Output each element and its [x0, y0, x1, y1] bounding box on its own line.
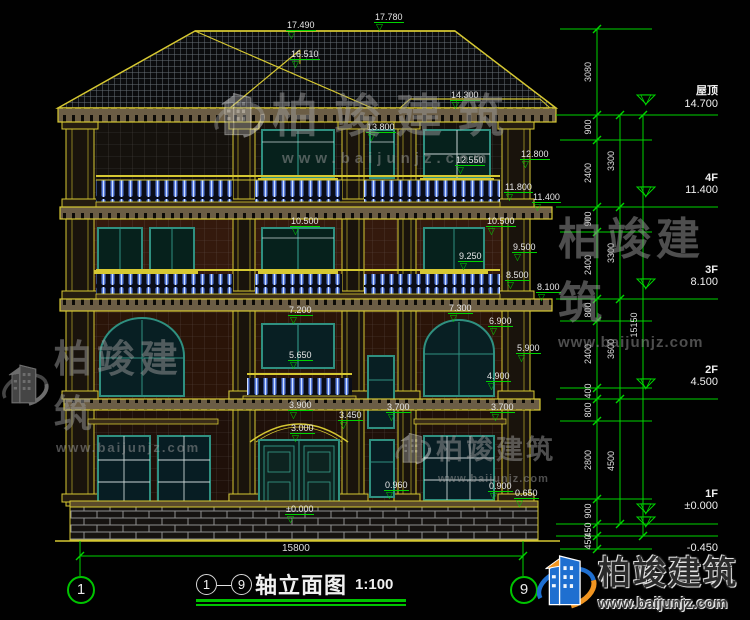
drawing-title: 1—9轴立面图1:100: [196, 568, 393, 600]
elevation-marker-icon: ▽: [488, 228, 516, 235]
elevation-label: 6.900▽: [488, 316, 513, 335]
balustrade-3f: [96, 270, 500, 299]
elevation-label: 9.250▽: [458, 251, 483, 270]
elevation-label: 17.490▽: [286, 20, 316, 39]
floor-marker: -0.450: [648, 542, 718, 554]
balustrade-4f: [96, 176, 500, 207]
floor-marker: 1F±0.000: [648, 488, 718, 512]
floor-marker-triangle-icon: ▽: [640, 186, 652, 198]
elevation-marker-icon: ▽: [290, 317, 313, 324]
elevation-marker-icon: ▽: [386, 492, 409, 499]
dimension-value: 3600: [606, 339, 616, 359]
dimension-value: 2400: [583, 163, 593, 183]
elevation-marker-icon: ▽: [460, 263, 483, 270]
title-axis-to: 9: [231, 574, 252, 595]
floor-marker: 3F8.100: [648, 264, 718, 288]
roof: [58, 31, 556, 108]
elevation-label: 3.900▽: [288, 400, 313, 419]
title-dash: —: [217, 576, 231, 592]
elevation-marker-icon: ▽: [450, 315, 473, 322]
elevation-label: 5.650▽: [288, 350, 313, 369]
elevation-marker-icon: ▽: [292, 228, 320, 235]
dimension-value: 3300: [606, 151, 616, 171]
dimension-value: 400: [583, 383, 593, 398]
dimension-value: 800: [583, 402, 593, 417]
cad-elevation-drawing: 17.490▽17.780▽16.510▽14.300▽13.800▽12.80…: [0, 0, 750, 620]
elevation-label: 4.900▽: [486, 371, 511, 390]
title-text: 轴立面图: [255, 573, 347, 598]
elevation-marker-icon: ▽: [287, 516, 314, 523]
elevation-marker-icon: ▽: [376, 24, 404, 31]
elevation-label: 3.000▽: [290, 423, 315, 442]
elevation-marker-icon: ▽: [290, 362, 313, 369]
axis-bubble-1: 1: [67, 576, 95, 604]
floor-marker: 4F11.400: [648, 172, 718, 196]
dimension-value: 900: [583, 211, 593, 226]
floor-marker: 2F4.500: [648, 364, 718, 388]
elevation-label: 0.650▽: [514, 488, 539, 507]
elevation-label: 11.400▽: [532, 192, 561, 211]
elevation-label: 8.100▽: [536, 282, 561, 301]
axis-bubble-9: 9: [510, 576, 538, 604]
elevation-marker-icon: ▽: [514, 254, 537, 261]
floor-marker-triangle-icon: ▽: [640, 278, 652, 290]
elevation-label: 17.780▽: [374, 12, 404, 31]
dimension-value: 3300: [606, 243, 616, 263]
dimension-value: 450: [583, 534, 593, 549]
elevation-marker-icon: ▽: [534, 204, 561, 211]
elevation-marker-icon: ▽: [522, 161, 550, 168]
elevation-marker-icon: ▽: [490, 493, 513, 500]
elevation-label: 14.300▽: [450, 90, 480, 109]
elevation-label: 12.800▽: [520, 149, 550, 168]
dimension-value: 800: [583, 302, 593, 317]
elevation-marker-icon: ▽: [490, 328, 513, 335]
elevation-label: 0.960▽: [384, 480, 409, 499]
elevation-label: 8.500▽: [505, 270, 530, 289]
elevation-label: 9.500▽: [512, 242, 537, 261]
elevation-marker-icon: ▽: [492, 414, 515, 421]
elevation-label: 5.900▽: [516, 343, 541, 362]
floor-marker: 屋顶14.700: [648, 82, 718, 110]
elevation-marker-icon: ▽: [290, 412, 313, 419]
elevation-label: ±0.000▽: [285, 504, 314, 523]
elevation-marker-icon: ▽: [388, 414, 411, 421]
elevation-marker-icon: ▽: [457, 167, 485, 174]
dimension-value: 900: [583, 119, 593, 134]
elevation-marker-icon: ▽: [292, 435, 315, 442]
elevation-label: 7.200▽: [288, 305, 313, 324]
elevation-label: 3.450▽: [338, 410, 363, 429]
elevation-label: 11.800▽: [504, 182, 533, 201]
elevation-marker-icon: ▽: [340, 422, 363, 429]
elevation-label: 13.800▽: [366, 122, 396, 141]
dimension-value: 4500: [606, 451, 616, 471]
floor-marker-triangle-icon: ▽: [640, 378, 652, 390]
elevation-label: 10.500▽: [290, 216, 320, 235]
elevation-marker-icon: ▽: [518, 355, 541, 362]
dimension-value: 15150: [629, 312, 639, 337]
elevation-label: 12.550▽: [455, 155, 485, 174]
elevation-label: 7.300▽: [448, 303, 473, 322]
elevation-marker-icon: ▽: [292, 61, 320, 68]
dimension-value: 2400: [583, 344, 593, 364]
elevation-marker-icon: ▽: [288, 32, 316, 39]
floor-marker-triangle-icon: ▽: [640, 94, 652, 106]
elevation-label: 10.500▽: [486, 216, 516, 235]
elevation-marker-icon: ▽: [452, 102, 480, 109]
drawing-canvas: [0, 0, 750, 620]
elevation-label: 3.700▽: [386, 402, 411, 421]
elevation-label: 16.510▽: [290, 49, 320, 68]
title-underline-1: [196, 599, 406, 602]
elevation-marker-icon: ▽: [488, 383, 511, 390]
floor-marker-triangle-icon: ▽: [640, 516, 652, 528]
elevation-marker-icon: ▽: [506, 194, 533, 201]
dimension-value: 3080: [583, 62, 593, 82]
dimension-value: 2400: [583, 255, 593, 275]
overall-width-dim: 15800: [282, 543, 310, 554]
dimension-value: 900: [583, 503, 593, 518]
elevation-marker-icon: ▽: [368, 134, 396, 141]
title-axis-from: 1: [196, 574, 217, 595]
elevation-label: 3.700▽: [490, 402, 515, 421]
elevation-marker-icon: ▽: [507, 282, 530, 289]
elevation-label: 0.900▽: [488, 481, 513, 500]
elevation-marker-icon: ▽: [538, 294, 561, 301]
elevation-marker-icon: ▽: [516, 500, 539, 507]
dimension-value: 2800: [583, 450, 593, 470]
title-underline-2: [196, 604, 406, 606]
title-scale: 1:100: [355, 576, 393, 593]
balcony-2f: [243, 374, 356, 401]
